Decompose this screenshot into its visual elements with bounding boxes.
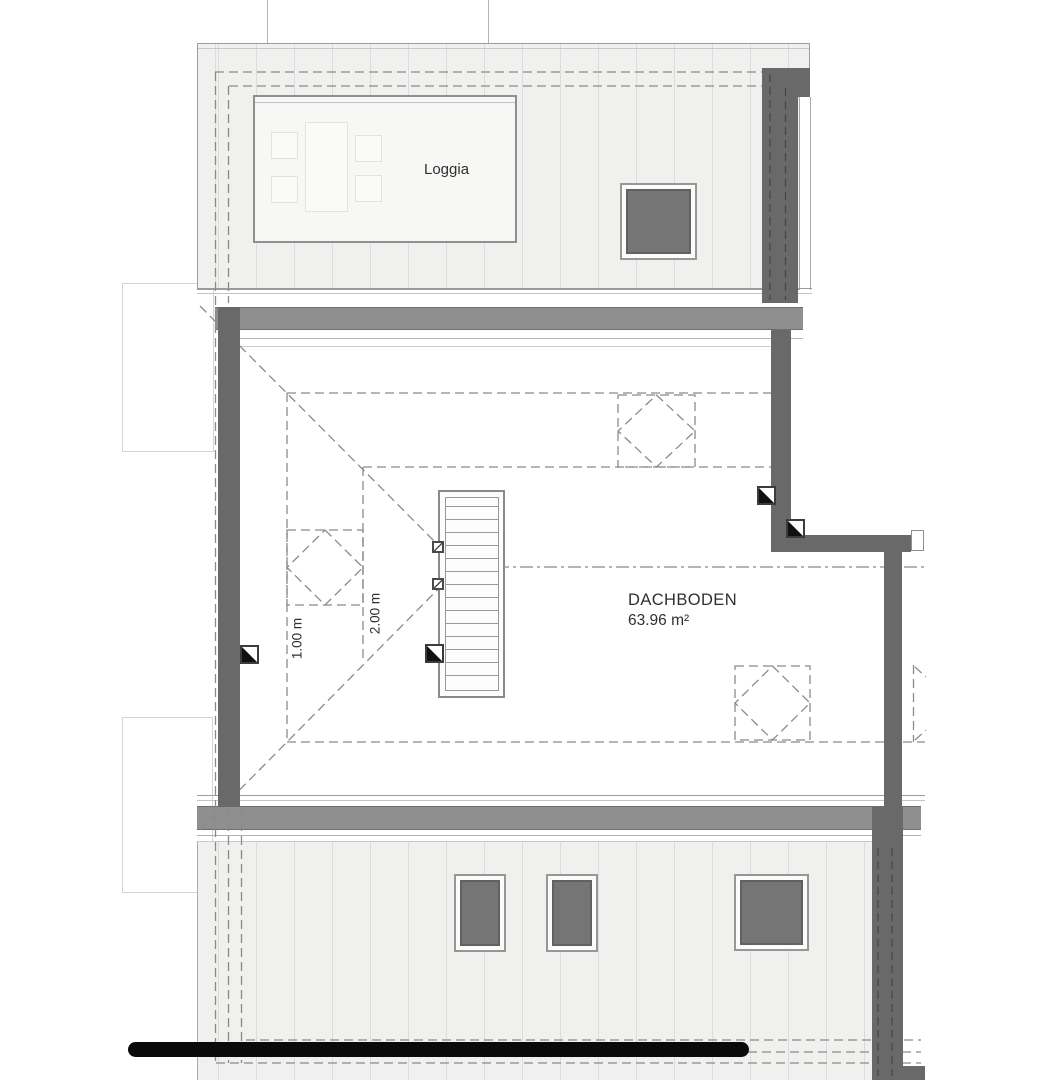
staircase-flight (445, 497, 499, 691)
stair-rail-node (432, 578, 444, 590)
roof-window-bottom-3 (734, 874, 809, 951)
roof-window-glass (740, 880, 803, 945)
upper-wall-band (215, 307, 803, 330)
loggia-chair (355, 135, 382, 162)
skylight-diamond-topright (618, 395, 695, 467)
column-marker (786, 519, 805, 538)
height-dimension-1m-label: 1.00 m (290, 609, 305, 669)
column-marker (240, 645, 259, 664)
wall-room-left (218, 307, 240, 807)
column-marker (757, 486, 776, 505)
room-name-label: DACHBODEN (628, 591, 737, 610)
lower-eave-line (197, 795, 925, 796)
loggia-chair (271, 132, 298, 159)
lower-interior-line (197, 835, 921, 836)
lower-wall-band (197, 806, 921, 830)
wall-room-right-upper (771, 330, 791, 537)
column-marker-triangle-icon (427, 646, 442, 661)
column-marker-triangle-icon (242, 647, 257, 662)
roof-window-bottom-1 (454, 874, 506, 952)
stair-rail-node (432, 541, 444, 553)
roof-window-glass (552, 880, 592, 946)
roof-window-bottom-2 (546, 874, 598, 952)
upper-roof-edge-line (198, 48, 809, 49)
upper-interior-line-1 (232, 338, 803, 339)
section-line-bar (128, 1042, 749, 1057)
room-area-label: 63.96 m² (628, 612, 689, 630)
loggia-area (253, 95, 517, 243)
loggia-table (305, 122, 348, 212)
roof-window-glass (460, 880, 500, 946)
loggia-label: Loggia (424, 161, 469, 178)
wall-bottom-step (903, 1066, 925, 1080)
upper-interior-line-2 (240, 346, 790, 347)
column-marker-triangle-icon (759, 488, 774, 503)
wall-loggia-right (762, 95, 798, 303)
upper-eave-line-2 (197, 293, 812, 294)
column-marker (425, 644, 444, 663)
staircase-treads (446, 506, 498, 684)
skylight-dashed-left (287, 530, 363, 605)
skylight-diamond-bottomright (735, 666, 810, 740)
lower-eave-line-2 (197, 800, 925, 801)
wall-end-notch (911, 530, 924, 551)
skylight-dashed-clipped-tick2 (915, 730, 926, 740)
reference-line-left (267, 0, 268, 44)
adjacent-outline-top (122, 283, 214, 452)
roof-window-upper (620, 183, 697, 260)
reference-line-right (488, 0, 489, 44)
skylight-dashed-topright (618, 395, 695, 467)
column-marker-triangle-icon (788, 521, 803, 536)
loggia-threshold-line (255, 102, 515, 103)
loggia-chair (271, 176, 298, 203)
skylight-dashed-bottomright (735, 666, 810, 740)
skylight-dashed-clipped-tick1 (915, 667, 926, 677)
upper-eave-line (197, 288, 812, 289)
height-dimension-2m-label: 2.00 m (368, 584, 383, 644)
skylight-diamond-left (287, 530, 363, 605)
upper-roof-right-edge (799, 97, 811, 290)
wall-room-right-lower (884, 551, 902, 809)
loggia-chair (355, 175, 382, 202)
wall-top-right-flange (762, 68, 810, 97)
roof-window-glass (626, 189, 691, 254)
wall-bottom-right (872, 807, 903, 1080)
floor-plan-canvas: Loggia DACHBODEN 63.96 m² 1.00 m 2.00 m (0, 0, 1059, 1080)
